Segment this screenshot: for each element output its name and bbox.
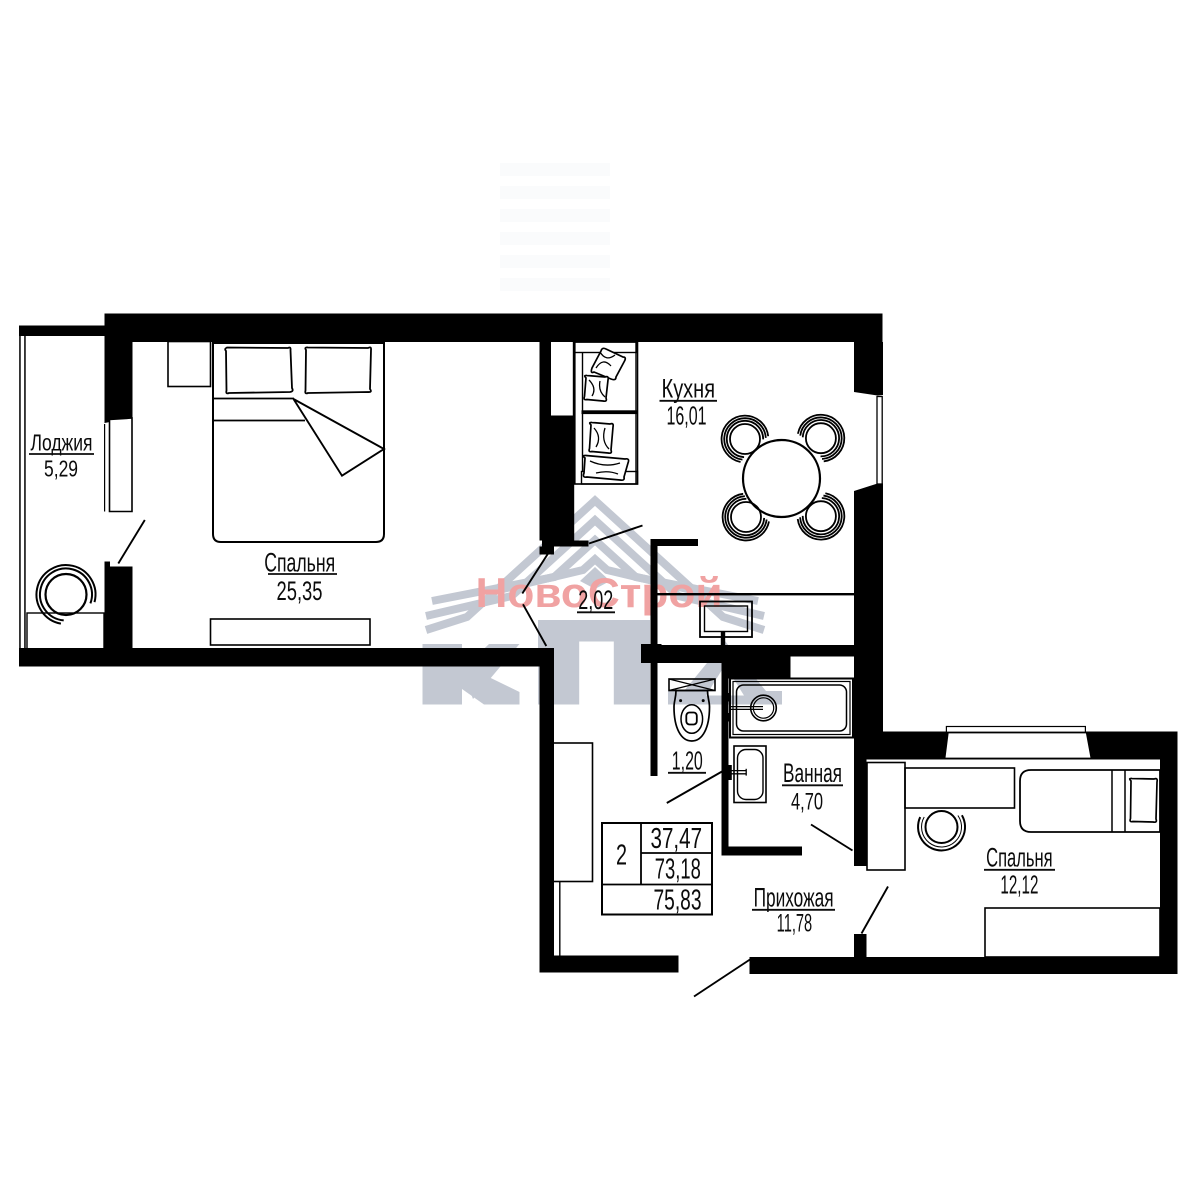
svg-text:16,01: 16,01 — [667, 401, 707, 431]
svg-text:1,20: 1,20 — [672, 746, 703, 776]
svg-text:Лоджия: Лоджия — [31, 430, 93, 456]
svg-text:4,70: 4,70 — [791, 789, 823, 816]
svg-text:11,78: 11,78 — [777, 910, 813, 938]
svg-text:2,02: 2,02 — [578, 585, 613, 615]
svg-text:Спальня: Спальня — [986, 843, 1053, 873]
svg-text:2: 2 — [616, 840, 627, 872]
svg-text:Ванная: Ванная — [783, 758, 842, 788]
svg-text:75,83: 75,83 — [654, 885, 702, 917]
svg-text:5,29: 5,29 — [44, 456, 78, 482]
svg-text:Прихожая: Прихожая — [754, 883, 834, 913]
svg-text:Кухня: Кухня — [662, 374, 716, 404]
svg-text:73,18: 73,18 — [655, 854, 701, 886]
svg-text:Спальня: Спальня — [264, 548, 335, 578]
svg-text:37,47: 37,47 — [651, 823, 703, 855]
svg-text:25,35: 25,35 — [277, 576, 323, 606]
svg-text:12,12: 12,12 — [1000, 870, 1038, 900]
